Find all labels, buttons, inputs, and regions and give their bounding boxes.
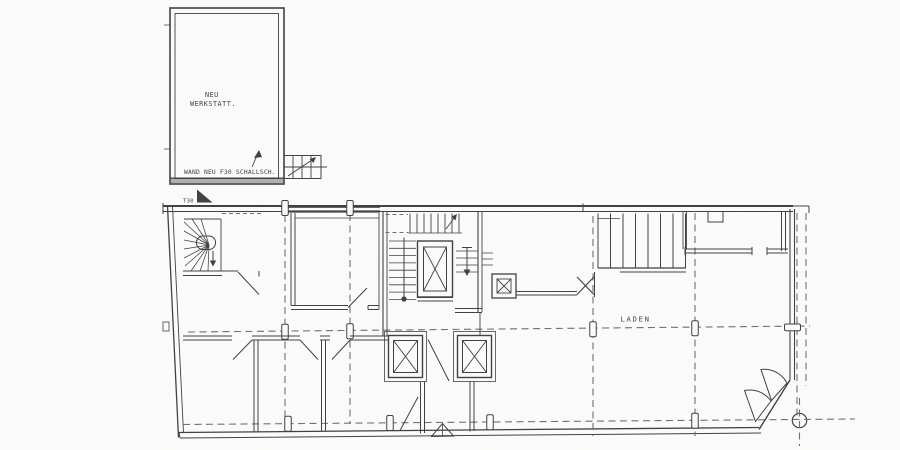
exterior-stair (284, 156, 327, 179)
workshop-label-line2: WERKSTATT. (190, 100, 236, 108)
top-right-rooms (683, 212, 788, 256)
shop-label: LADEN (621, 315, 651, 324)
stair-direction-arrow-icon (310, 157, 317, 163)
shaft-x-icon (424, 247, 447, 291)
wall-note: WAND NEU F30 SCHALLSCH. (184, 150, 276, 176)
top-wall (163, 203, 809, 214)
wide-stair (598, 214, 686, 273)
stair-treads (389, 241, 416, 299)
stair-core (383, 212, 482, 337)
shaft-x-icon (497, 279, 511, 293)
building-outline (163, 203, 809, 438)
service-shafts (385, 332, 496, 382)
door-swings (233, 340, 350, 360)
door-leaf-icon (761, 369, 787, 400)
wall-note-label: WAND NEU F30 SCHALLSCH. (184, 169, 276, 176)
fire-door-t30: T30 (183, 190, 213, 205)
elevator-shaft-main (418, 241, 453, 297)
small-elevator (482, 253, 595, 298)
floor-plan-drawing: NEU WERKSTATT. WAND NEU F30 SCHALLSCH. T… (0, 0, 900, 450)
chamfer-wall (759, 380, 790, 430)
wall-note-arrowhead-icon (254, 150, 262, 158)
shaft-x-icon (394, 341, 418, 373)
winder-stair (183, 219, 238, 276)
left-wall (163, 206, 184, 438)
workshop-annex: NEU WERKSTATT. (164, 8, 284, 184)
workshop-label-line1: NEU (205, 91, 219, 99)
new-f30-wall (170, 178, 284, 183)
door-swing (348, 288, 367, 308)
walking-line-start-icon (401, 296, 406, 301)
right-wall (759, 209, 795, 430)
door-swing (428, 340, 449, 382)
middle-room-walls (291, 213, 379, 310)
fire-door-label: T30 (183, 199, 194, 205)
shaft-x-icon (463, 341, 487, 373)
stair-direction-arrow-icon (210, 261, 216, 267)
column-markers (282, 201, 801, 432)
door-swing-icon (197, 190, 213, 203)
scanned-floor-plan-page: NEU WERKSTATT. WAND NEU F30 SCHALLSCH. T… (0, 0, 900, 450)
door-swing (238, 271, 259, 295)
door-swing (400, 397, 418, 431)
stair-direction-arrow-icon (464, 270, 471, 277)
opening-x-mark-icon (577, 277, 594, 295)
new-f90-wall-band (284, 205, 380, 213)
stair-treads (598, 214, 686, 269)
stair-treads (410, 214, 459, 234)
